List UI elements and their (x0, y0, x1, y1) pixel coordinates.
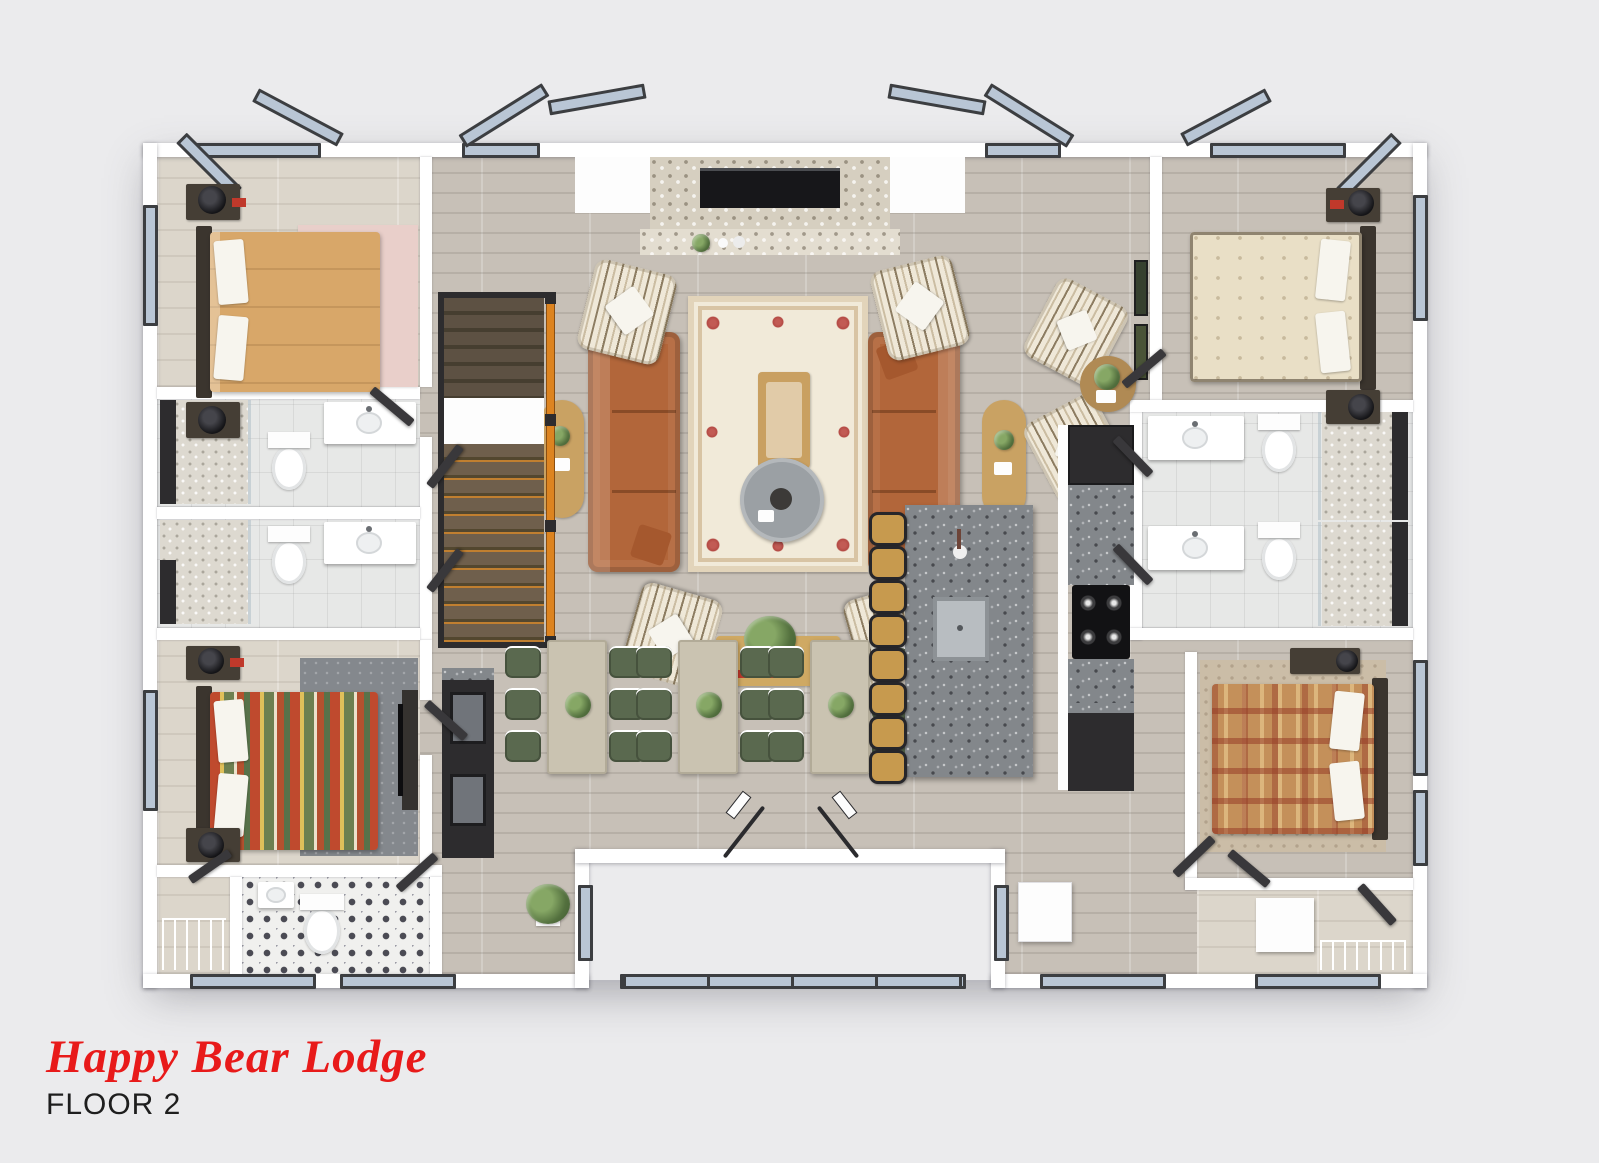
utility-cabinet (1256, 898, 1314, 952)
dresser-tv (402, 690, 418, 810)
window (462, 143, 540, 158)
table-lamp (198, 406, 226, 434)
sliding-door (620, 974, 966, 989)
rug-medallion (706, 426, 718, 438)
window (143, 690, 158, 811)
dining-chair (505, 646, 541, 678)
cooktop (1072, 585, 1130, 659)
wall-int (420, 437, 432, 640)
hearth-vase (733, 236, 745, 248)
sofa-pillow (630, 524, 673, 567)
french-door-open (887, 84, 986, 116)
window (143, 205, 158, 326)
stair-flight-lower (444, 444, 544, 642)
window (985, 143, 1061, 158)
bar-stool (869, 750, 907, 784)
kitchen-counter (1068, 485, 1134, 585)
floor-plan-canvas: Happy Bear Lodge FLOOR 2 (0, 0, 1599, 1163)
shower-glass (248, 400, 251, 504)
dining-chair (636, 688, 672, 720)
toilet-tank (268, 526, 310, 542)
wall-int (230, 877, 242, 974)
fireplace-insert-tv (700, 168, 840, 208)
window (190, 974, 316, 989)
french-door-open (983, 83, 1074, 148)
wall-int (157, 507, 420, 519)
rug-medallion (772, 316, 784, 328)
wall-int (157, 628, 420, 640)
bed-headboard (1372, 678, 1388, 840)
shower-accent-wall (1392, 412, 1408, 520)
bar-stool (869, 614, 907, 648)
stair-void-railing (1320, 940, 1406, 970)
book-red (230, 658, 244, 667)
rug-medallion (706, 316, 720, 330)
stair-void-railing (162, 918, 226, 970)
window (1413, 660, 1428, 776)
bed-pillow (213, 699, 248, 763)
table-lamp (1348, 190, 1374, 216)
wall-int (420, 640, 432, 700)
rug-medallion (836, 538, 850, 552)
rug-medallion (836, 316, 850, 330)
bed-pillow (1329, 691, 1365, 752)
dining-table (678, 640, 738, 774)
kitchen-cabinet (1068, 703, 1134, 791)
kitchen-island (905, 505, 1033, 777)
beverage-cabinet (442, 668, 494, 858)
hearth-vase (718, 238, 728, 248)
dining-chair (636, 646, 672, 678)
shower-glass (248, 520, 251, 624)
dining-chair (768, 688, 804, 720)
fireplace-flank-wall (575, 157, 653, 213)
french-door-open (458, 83, 549, 148)
planter-plant (526, 884, 570, 924)
bar-stool (869, 512, 907, 546)
bed-pillow (213, 239, 248, 305)
table-lamp (198, 186, 226, 214)
window (1040, 974, 1166, 989)
toilet (304, 908, 340, 954)
side-table (982, 400, 1026, 518)
shower-accent-wall (160, 560, 176, 624)
dining-chair (768, 730, 804, 762)
dining-chair (636, 730, 672, 762)
bar-stool (869, 546, 907, 580)
window (578, 885, 593, 961)
window (1413, 195, 1428, 321)
french-door-open (1180, 88, 1272, 146)
bed-pillow (1315, 239, 1351, 302)
toilet-tank (300, 894, 344, 910)
kitchen-counter (1068, 659, 1134, 703)
french-door-open (252, 88, 344, 146)
stair-rail-post (545, 292, 556, 304)
deck-recess (589, 863, 991, 974)
wall-art (1136, 262, 1146, 314)
window (1255, 974, 1381, 989)
toilet (272, 446, 306, 490)
shower-glass (1318, 522, 1321, 626)
fireplace-hearth (640, 229, 900, 255)
stair-landing (444, 398, 544, 444)
toilet (1262, 428, 1296, 472)
table-lamp (1348, 394, 1374, 420)
side-cube-table (1018, 882, 1072, 942)
toilet (1262, 536, 1296, 580)
dining-chair (768, 646, 804, 678)
kitchen-counter-edge (1058, 425, 1068, 790)
bar-stool (869, 716, 907, 750)
dining-chair (505, 730, 541, 762)
bed-pillow (1329, 761, 1365, 822)
bed-pillow (213, 315, 248, 381)
hearth-plant (692, 234, 710, 252)
stair-rail-post (545, 414, 556, 426)
rug-medallion (838, 426, 850, 438)
island-sink (933, 597, 989, 661)
shower-accent-wall (1392, 522, 1408, 626)
round-side-table (740, 458, 824, 542)
table-lamp (198, 648, 224, 674)
bed-headboard (1360, 226, 1376, 390)
bar-stool (869, 580, 907, 614)
page-title: Happy Bear Lodge (46, 1030, 428, 1084)
wall-int (1185, 878, 1413, 890)
sofa-left (588, 332, 680, 572)
toilet-tank (1258, 522, 1300, 538)
bathroom-vanity (1148, 416, 1244, 460)
french-door-open (547, 84, 646, 116)
bed-pillow (1315, 311, 1351, 374)
powder-sink (258, 882, 294, 908)
table-lamp (1336, 650, 1358, 672)
floor-label: FLOOR 2 (46, 1088, 181, 1122)
refrigerator (1068, 425, 1134, 485)
wall-int (420, 157, 432, 387)
wall-int (1130, 628, 1413, 640)
window (1413, 790, 1428, 866)
stair-railing (546, 292, 555, 648)
wall-int (430, 877, 442, 974)
lounge-chair (758, 372, 810, 468)
rug-medallion (706, 538, 720, 552)
toilet-tank (268, 432, 310, 448)
bathroom-vanity (1148, 526, 1244, 570)
dining-chair (505, 688, 541, 720)
dining-table (810, 640, 870, 774)
bathroom-vanity (324, 522, 416, 564)
shower-accent-wall (160, 400, 176, 504)
stair-flight-upper (444, 298, 544, 398)
toilet (272, 540, 306, 584)
shower-glass (1318, 412, 1321, 520)
stair-rail-post (545, 520, 556, 532)
fireplace-flank-wall (887, 157, 965, 213)
book-red (232, 198, 246, 207)
window (994, 885, 1009, 961)
bar-stool (869, 682, 907, 716)
bar-stool (869, 648, 907, 682)
wall-recess-top (575, 849, 1005, 863)
wall-int (420, 755, 432, 865)
book-red (1330, 200, 1344, 209)
window (1210, 143, 1346, 158)
toilet-tank (1258, 414, 1300, 430)
window (340, 974, 456, 989)
dining-table (547, 640, 607, 774)
